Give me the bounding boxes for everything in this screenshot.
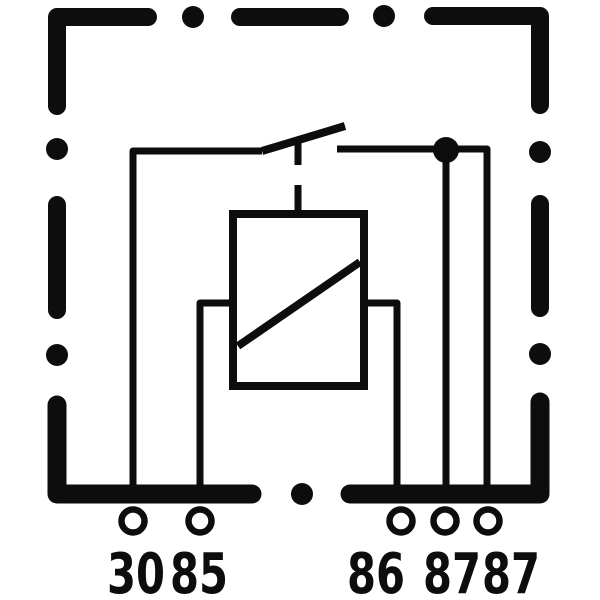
terminal-pin-85 <box>189 510 212 533</box>
wire-coil-to-terminal-86 <box>364 303 397 494</box>
border-dot-left-1 <box>46 138 68 160</box>
terminal-label-87-1: 87 <box>423 542 481 600</box>
wire-coil-to-terminal-85 <box>200 303 233 494</box>
border-dot-right-1 <box>529 141 551 163</box>
border-top-left-corner <box>57 17 148 106</box>
terminal-pin-87-2 <box>477 510 500 533</box>
terminal-label-30: 30 <box>107 542 165 600</box>
terminal-label-87-2: 87 <box>482 542 540 600</box>
terminal-pin-86 <box>390 510 413 533</box>
junction-dot <box>433 137 459 163</box>
terminal-label-85: 85 <box>170 542 228 600</box>
border-top-right-corner <box>433 16 540 105</box>
border-bottom-left-corner <box>57 405 252 494</box>
border-dot-bottom <box>291 483 313 505</box>
border-dot-top-2 <box>373 5 395 27</box>
border-dot-right-2 <box>529 343 551 365</box>
terminal-pin-30 <box>122 510 145 533</box>
switch-blade <box>262 126 345 151</box>
border-dot-top-1 <box>182 6 204 28</box>
terminal-pin-87-1 <box>434 510 457 533</box>
terminal-labels: 30 85 86 87 87 <box>107 542 540 600</box>
terminal-label-86: 86 <box>347 542 405 600</box>
terminal-pins <box>122 510 500 533</box>
schematic-canvas: 30 85 86 87 87 <box>0 0 600 600</box>
relay-schematic-figure: 30 85 86 87 87 <box>0 0 600 600</box>
coil-symbol <box>200 214 397 494</box>
border-dot-left-2 <box>46 344 68 366</box>
